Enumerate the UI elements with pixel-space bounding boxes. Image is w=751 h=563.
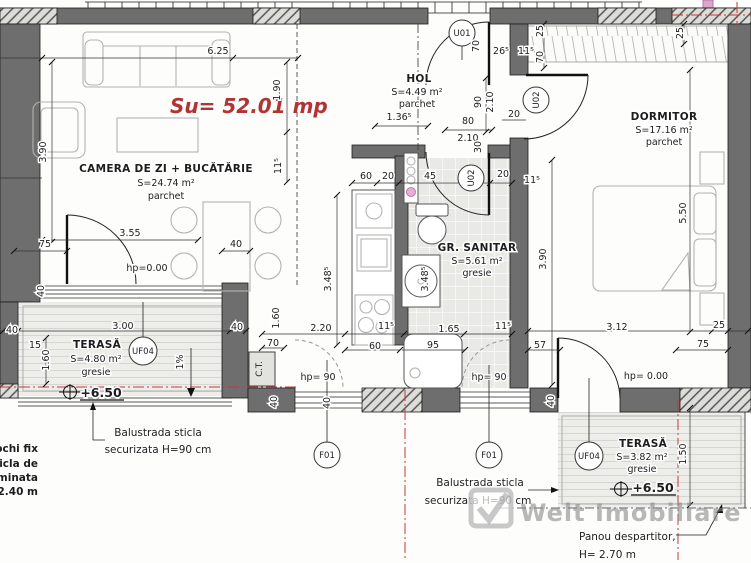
dimension-label: 25 xyxy=(675,27,686,39)
wall-hatched-segment xyxy=(672,8,751,24)
room-name-bathroom: GR. SANITAR xyxy=(438,242,517,254)
dimension-label: 75 xyxy=(39,239,51,250)
level-label-terrace-2: +6.50 xyxy=(631,480,676,495)
door-tag-u02-label: U02 xyxy=(467,169,477,186)
dimension-label: 3.55 xyxy=(119,228,140,239)
balustrade-note-1-line-2: securizata H=90 cm xyxy=(105,444,212,456)
dimension-label: 1.60 xyxy=(271,307,282,328)
dimension-label: 2.20 xyxy=(310,323,331,334)
room-area-bedroom: S=17.16 m² xyxy=(635,125,692,136)
dimension-label: 20 xyxy=(497,169,509,180)
wall-pier xyxy=(222,283,248,398)
wall-segment-bottom xyxy=(422,388,460,412)
dimension-label: 1.50 xyxy=(678,443,689,464)
room-name-hall: HOL xyxy=(406,73,431,85)
left-note-line-4: 2.40 m xyxy=(0,486,38,498)
dimension-label: 40 xyxy=(322,397,333,409)
fixture-pink xyxy=(407,188,416,197)
pillow xyxy=(694,193,716,234)
balustrade-2-leader xyxy=(528,487,559,493)
dimension-label: 40 xyxy=(546,395,557,407)
door-tag-u02-label: U02 xyxy=(532,91,542,108)
room-area-terrace-1: S=4.80 m² xyxy=(70,354,121,365)
chair xyxy=(171,207,197,233)
dimension-label: 26⁵ xyxy=(493,46,509,57)
window-tag-f01-right: F01 xyxy=(476,442,502,468)
dimension-label: 5.50 xyxy=(678,202,689,223)
wall-hatched-segment xyxy=(362,388,422,412)
balustrade-note-1-line-1: Balustrada sticla xyxy=(114,427,202,439)
dimension-label: 57 xyxy=(534,340,546,351)
dimension-label: 1.36⁵ xyxy=(387,112,412,123)
boiler-closet: C.T. xyxy=(249,352,275,386)
wall-segment-right xyxy=(728,24,751,388)
room-name-bedroom: DORMITOR xyxy=(631,111,698,123)
wall-hatched-segment xyxy=(0,8,57,24)
dimension-label: 25 xyxy=(713,320,725,331)
dimension-label: 70 xyxy=(535,51,546,63)
room-area-terrace-2: S=3.82 m² xyxy=(616,452,667,463)
dimension-label: 3.90 xyxy=(538,248,549,269)
coffee-table xyxy=(117,118,198,152)
dimension-label: 3.12 xyxy=(606,322,627,333)
dimension-label: 1.65 xyxy=(438,324,459,335)
window-tag-f01-label: F01 xyxy=(319,451,335,461)
dimension-label: 3.00 xyxy=(112,321,133,332)
wall-hall-bath xyxy=(488,145,512,158)
dining-table xyxy=(171,202,281,291)
door-tag-u01-label: U01 xyxy=(453,29,470,39)
wall-hatched-segment xyxy=(680,388,751,412)
window-f01-right xyxy=(460,392,530,408)
room-floor-hall: parchet xyxy=(399,99,436,110)
chair xyxy=(255,207,281,233)
dimension-label: 60 xyxy=(369,341,381,352)
left-note-line-1: ochi fix xyxy=(0,443,38,455)
level-label-terrace-1: +6.50 xyxy=(80,385,124,400)
left-note-line-2: icla de xyxy=(0,458,38,470)
terrace-1-floor xyxy=(18,302,232,396)
dimension-label: 40 xyxy=(230,239,242,250)
dimension-label: 75 xyxy=(697,339,709,350)
wall-segment-bottom xyxy=(620,388,680,412)
partition-note-line-2: H= 2.70 m xyxy=(579,549,636,561)
dimension-label: 40 xyxy=(36,285,47,297)
dimension-label: 11⁵ xyxy=(273,158,284,174)
room-area-hall: S=4.49 m² xyxy=(391,87,442,98)
wall-segment-left xyxy=(0,24,40,302)
watermark-logo-bg xyxy=(468,487,514,529)
floor-plan-page: C.T. xyxy=(0,0,751,563)
wall-hatched-segment xyxy=(253,8,300,24)
window-tag-uf04-label: UF04 xyxy=(132,347,154,357)
dimension-label: 20 xyxy=(382,171,394,182)
window-tag-f01-label: F01 xyxy=(481,451,497,461)
dimension-label: 95 xyxy=(427,340,439,351)
dimension-label: 25 xyxy=(535,25,546,37)
dimension-label: hp=0.00 xyxy=(126,263,167,274)
dimension-label: 11⁵ xyxy=(518,46,534,57)
balustrade-1-leader xyxy=(90,402,105,440)
dimension-label: 6.25 xyxy=(207,46,228,57)
left-note-line-3: minata xyxy=(0,472,38,484)
partition-note-line-1: Panou despartitor, xyxy=(579,531,676,543)
dimension-label: 40 xyxy=(269,396,280,408)
dimension-label: 60 xyxy=(360,171,372,182)
terrace-1-balustrade xyxy=(18,398,232,406)
dimension-label: 45 xyxy=(424,171,436,182)
dimension-label: 11⁵ xyxy=(495,321,511,332)
wall-hatched-segment xyxy=(598,8,656,24)
dimension-label: 90 xyxy=(473,96,484,108)
wardrobe-strip xyxy=(528,26,728,62)
chair xyxy=(171,253,197,279)
dimension-label: 40 xyxy=(6,325,18,336)
wall-hatched-segment xyxy=(0,384,18,398)
room-area-bathroom: S=5.61 m² xyxy=(451,256,502,267)
dimension-label: 70 xyxy=(471,40,482,52)
room-area-living: S=24.74 m² xyxy=(137,178,194,189)
dimension-label: 20 xyxy=(508,109,520,120)
window-tag-f01-left: F01 xyxy=(314,442,340,468)
door-tag-u02-bedroom: U02 xyxy=(523,87,549,113)
room-floor-living: parchet xyxy=(148,191,185,202)
room-floor-terrace-1: gresie xyxy=(81,367,110,378)
watermark-brand: Welt Imobiliare xyxy=(520,499,742,527)
window-tag-uf04-terrace-1: UF04 xyxy=(129,337,157,365)
wall-segment xyxy=(298,8,428,24)
room-floor-bathroom: gresie xyxy=(462,268,491,279)
dimension-label: hp= 90 xyxy=(300,372,335,383)
dimension-label: 11⁵ xyxy=(524,175,540,186)
dimension-label: 3.90 xyxy=(38,141,49,162)
dimension-label: 11⁵ xyxy=(378,321,394,332)
window-tag-uf04-label: UF04 xyxy=(578,452,600,462)
room-floor-terrace-2: gresie xyxy=(627,464,656,475)
door-tag-u02-bathroom: U02 xyxy=(458,165,484,191)
room-name-terrace-2: TERASĂ xyxy=(619,437,668,450)
dimension-label: 70 xyxy=(267,338,279,349)
window-tag-uf04-terrace-2: UF04 xyxy=(575,442,603,470)
dimension-label: 30 xyxy=(473,141,484,153)
dimension-label: 1.90 xyxy=(272,79,283,100)
sofa xyxy=(83,32,230,87)
blanket-fold xyxy=(662,253,690,290)
room-name-living: CAMERA DE ZI + BUCĂTĂRIE xyxy=(79,162,253,175)
pillow xyxy=(694,239,716,286)
usable-area-label: Su= 52.01 mp xyxy=(170,94,328,118)
dimension-label: 80 xyxy=(462,116,474,127)
dimension-label: 3.48⁵ xyxy=(420,266,431,291)
boiler-closet-label: C.T. xyxy=(255,361,265,377)
floor-plan-drawing: C.T. xyxy=(0,0,751,563)
chair xyxy=(255,253,281,279)
room-floor-bedroom: parchet xyxy=(646,137,683,148)
dimension-label: 40 xyxy=(231,322,243,333)
living-terrace-glass-wall xyxy=(40,286,222,298)
dimension-label: 3.48⁵ xyxy=(323,266,334,291)
svg-text:+6.50: +6.50 xyxy=(80,385,122,400)
svg-text:+6.50: +6.50 xyxy=(632,480,674,495)
nightstand xyxy=(700,152,724,184)
dimension-label: 1.60 xyxy=(41,349,52,370)
dimension-label: 15 xyxy=(29,340,41,351)
bed xyxy=(593,152,724,325)
toilet xyxy=(416,204,448,244)
dimension-label: hp= 0.00 xyxy=(624,371,668,382)
room-name-terrace-1: TERASĂ xyxy=(73,338,122,351)
dimension-label: 1% xyxy=(175,354,186,369)
dimension-label: 2.10 xyxy=(485,91,496,112)
dimension-label: hp= 90 xyxy=(471,372,506,383)
